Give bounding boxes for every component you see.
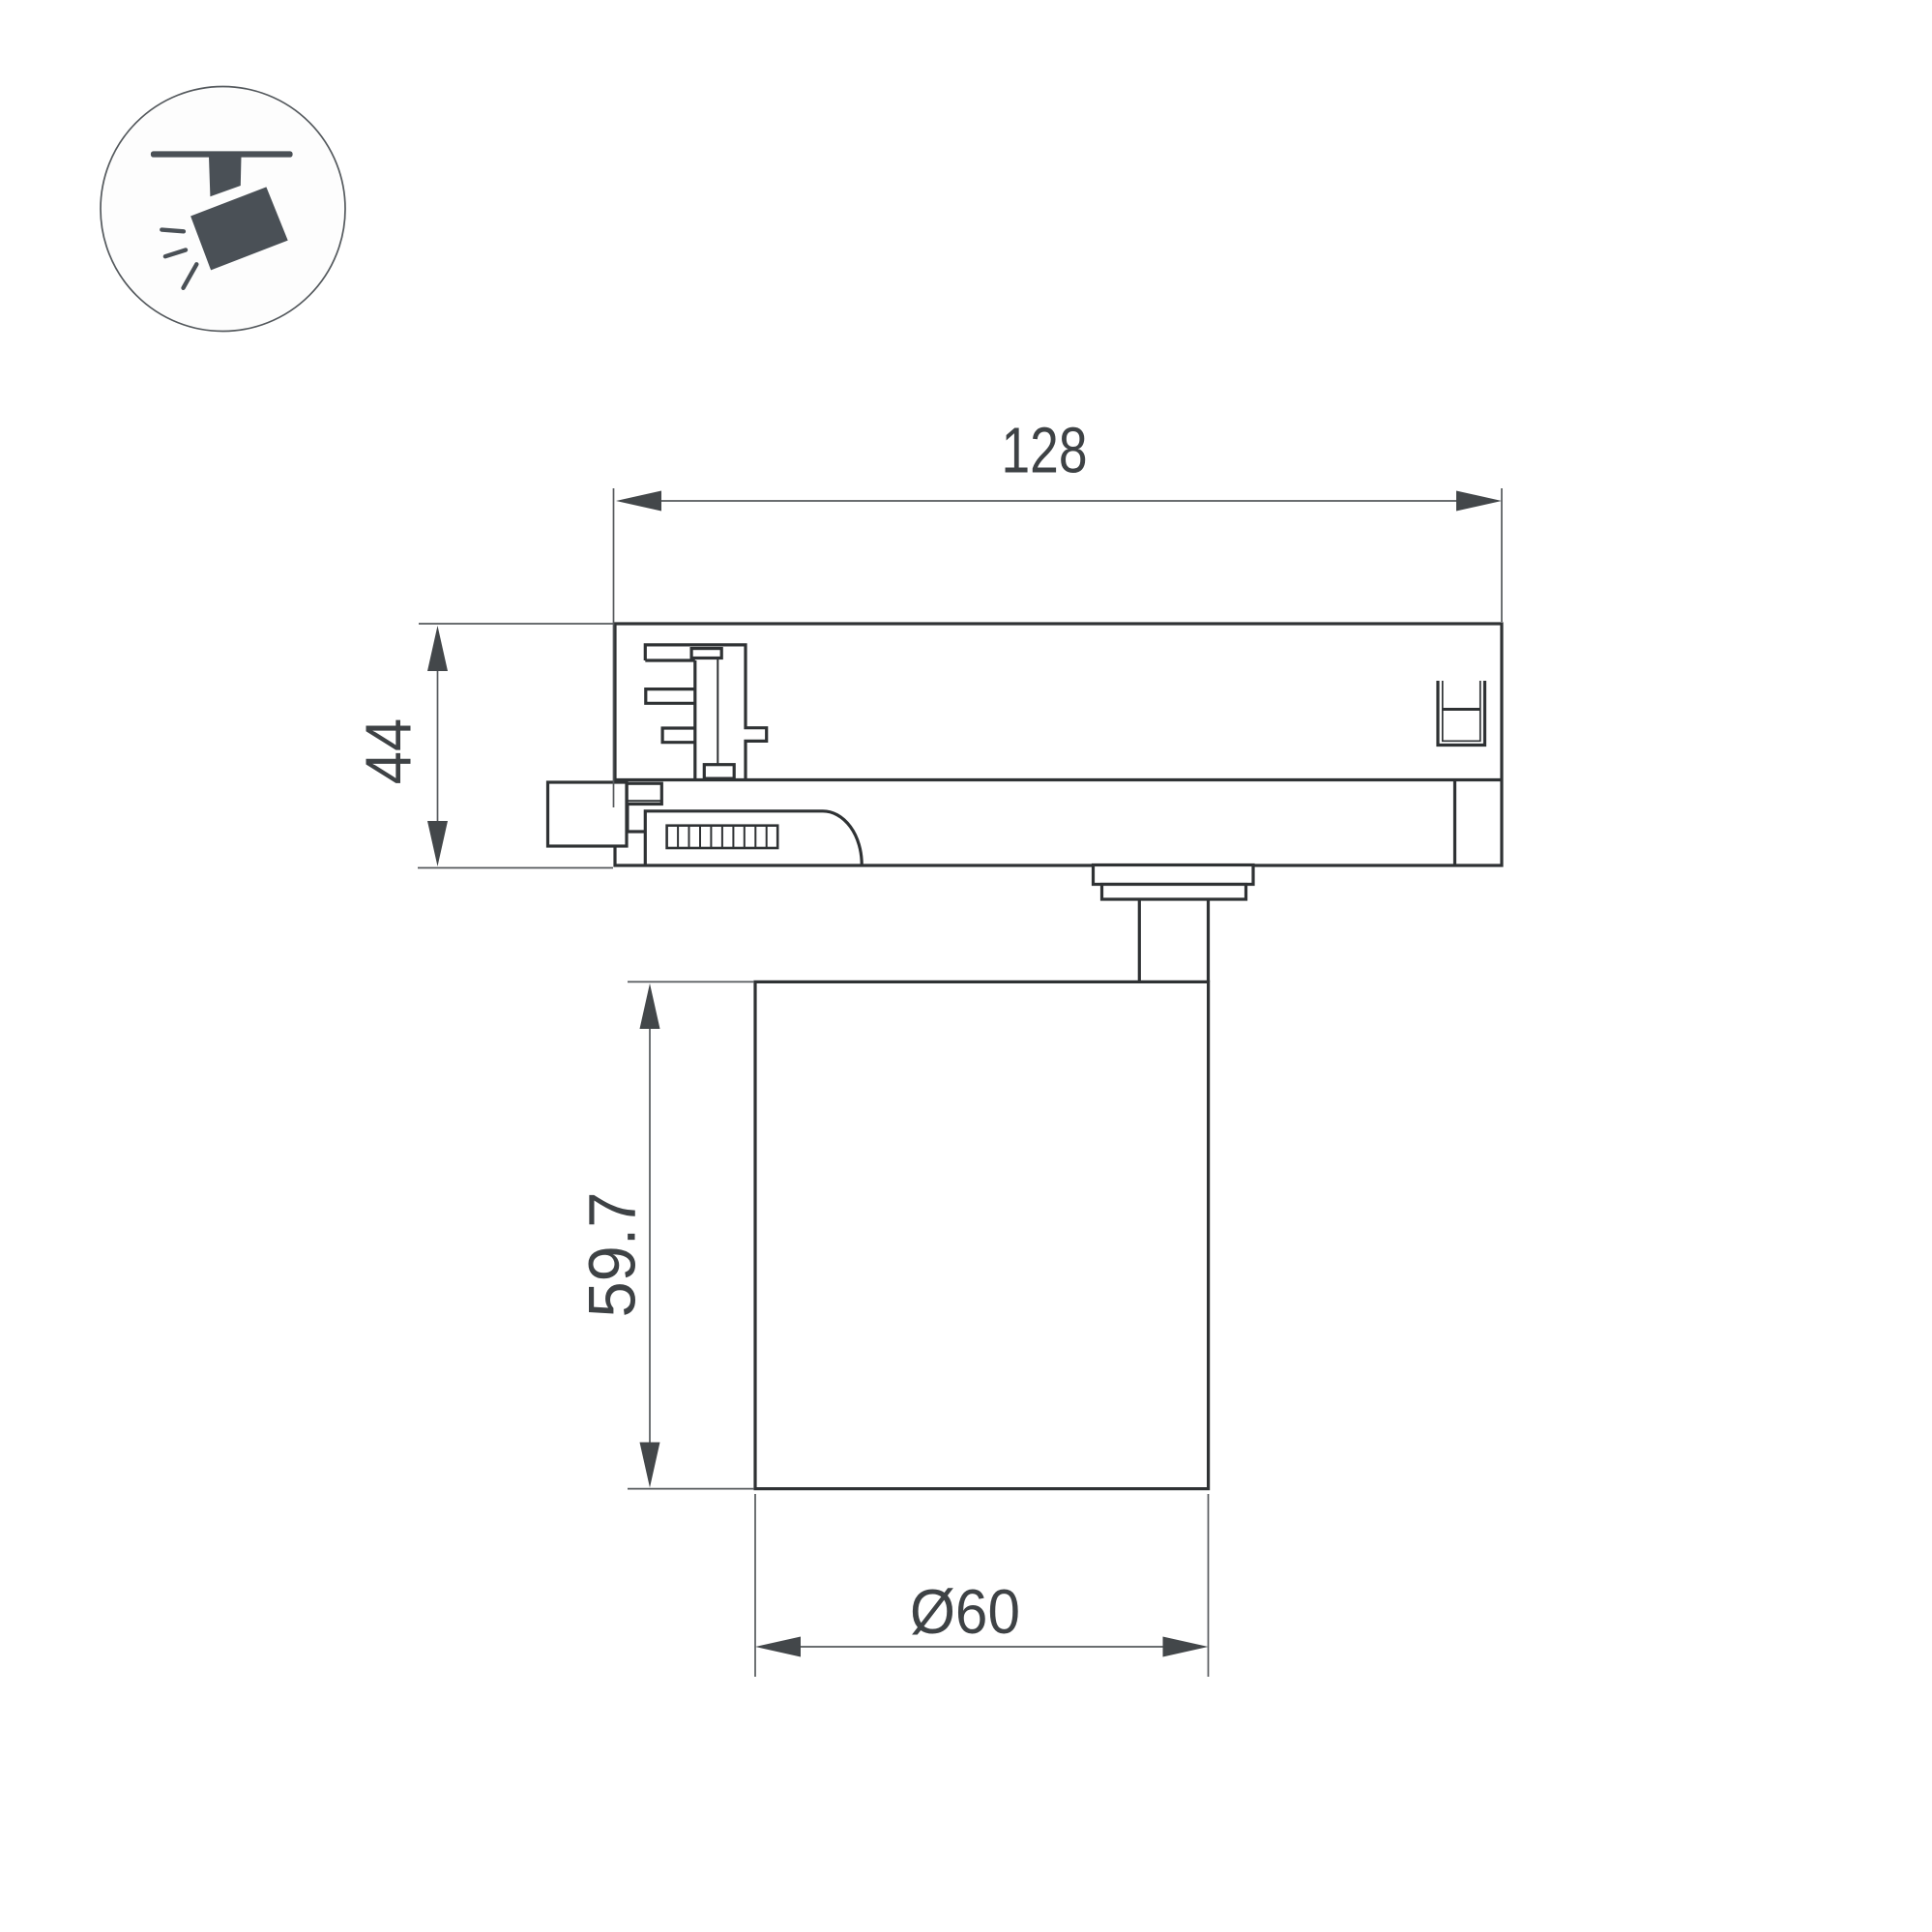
svg-text:128: 128: [1002, 415, 1088, 487]
svg-text:44: 44: [353, 718, 425, 785]
svg-text:Ø60: Ø60: [910, 1576, 1020, 1647]
svg-text:59.7: 59.7: [575, 1192, 650, 1318]
